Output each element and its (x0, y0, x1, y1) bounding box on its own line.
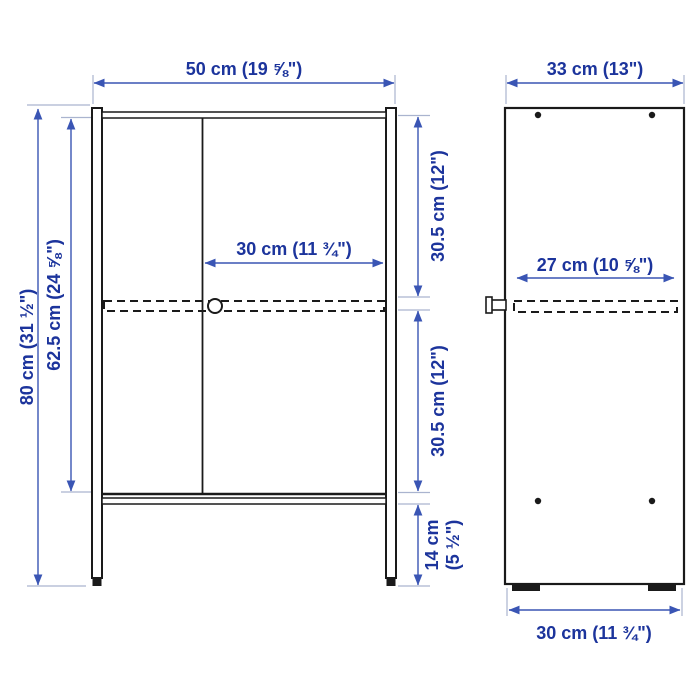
side-knob-cap (486, 297, 492, 313)
side-back-foot (648, 584, 676, 591)
interior-height-label: 62.5 cm (24 ⅝") (44, 239, 64, 371)
lower-section-label: 30.5 cm (12") (428, 345, 448, 457)
front-shelf-dashed-outline (104, 301, 384, 311)
side-view (486, 108, 684, 591)
front-view (92, 108, 396, 586)
upper-section-label: 30.5 cm (12") (428, 150, 448, 262)
door-knob (208, 299, 222, 313)
door-width-label: 30 cm (11 ¾") (236, 239, 352, 259)
screw-hole-dot (535, 112, 541, 118)
front-right-post (386, 108, 396, 578)
front-width-label: 50 cm (19 ⅝") (186, 59, 303, 79)
cabinet-dimension-diagram: 50 cm (19 ⅝") 33 cm (13") 80 cm (31 ½") … (0, 0, 700, 700)
front-bottom-rail (102, 498, 386, 504)
front-height-label: 80 cm (31 ½") (17, 289, 37, 406)
leg-height-label-inch: (5 ½") (443, 520, 463, 571)
base-depth-label: 30 cm (11 ¾") (536, 623, 652, 643)
shelf-depth-label: 27 cm (10 ⅝") (537, 255, 654, 275)
side-panel (505, 108, 684, 584)
leg-height-label-cm: 14 cm (422, 519, 442, 570)
screw-hole-dot (535, 498, 541, 504)
screw-hole-dot (649, 498, 655, 504)
side-knob-body (491, 300, 506, 310)
front-left-foot (93, 578, 102, 586)
side-depth-label: 33 cm (13") (547, 59, 644, 79)
front-right-foot (387, 578, 396, 586)
side-front-foot (512, 584, 540, 591)
dimension-diagram-page: 50 cm (19 ⅝") 33 cm (13") 80 cm (31 ½") … (0, 0, 700, 700)
front-left-post (92, 108, 102, 578)
screw-hole-dot (649, 112, 655, 118)
front-top-rail (102, 112, 386, 118)
